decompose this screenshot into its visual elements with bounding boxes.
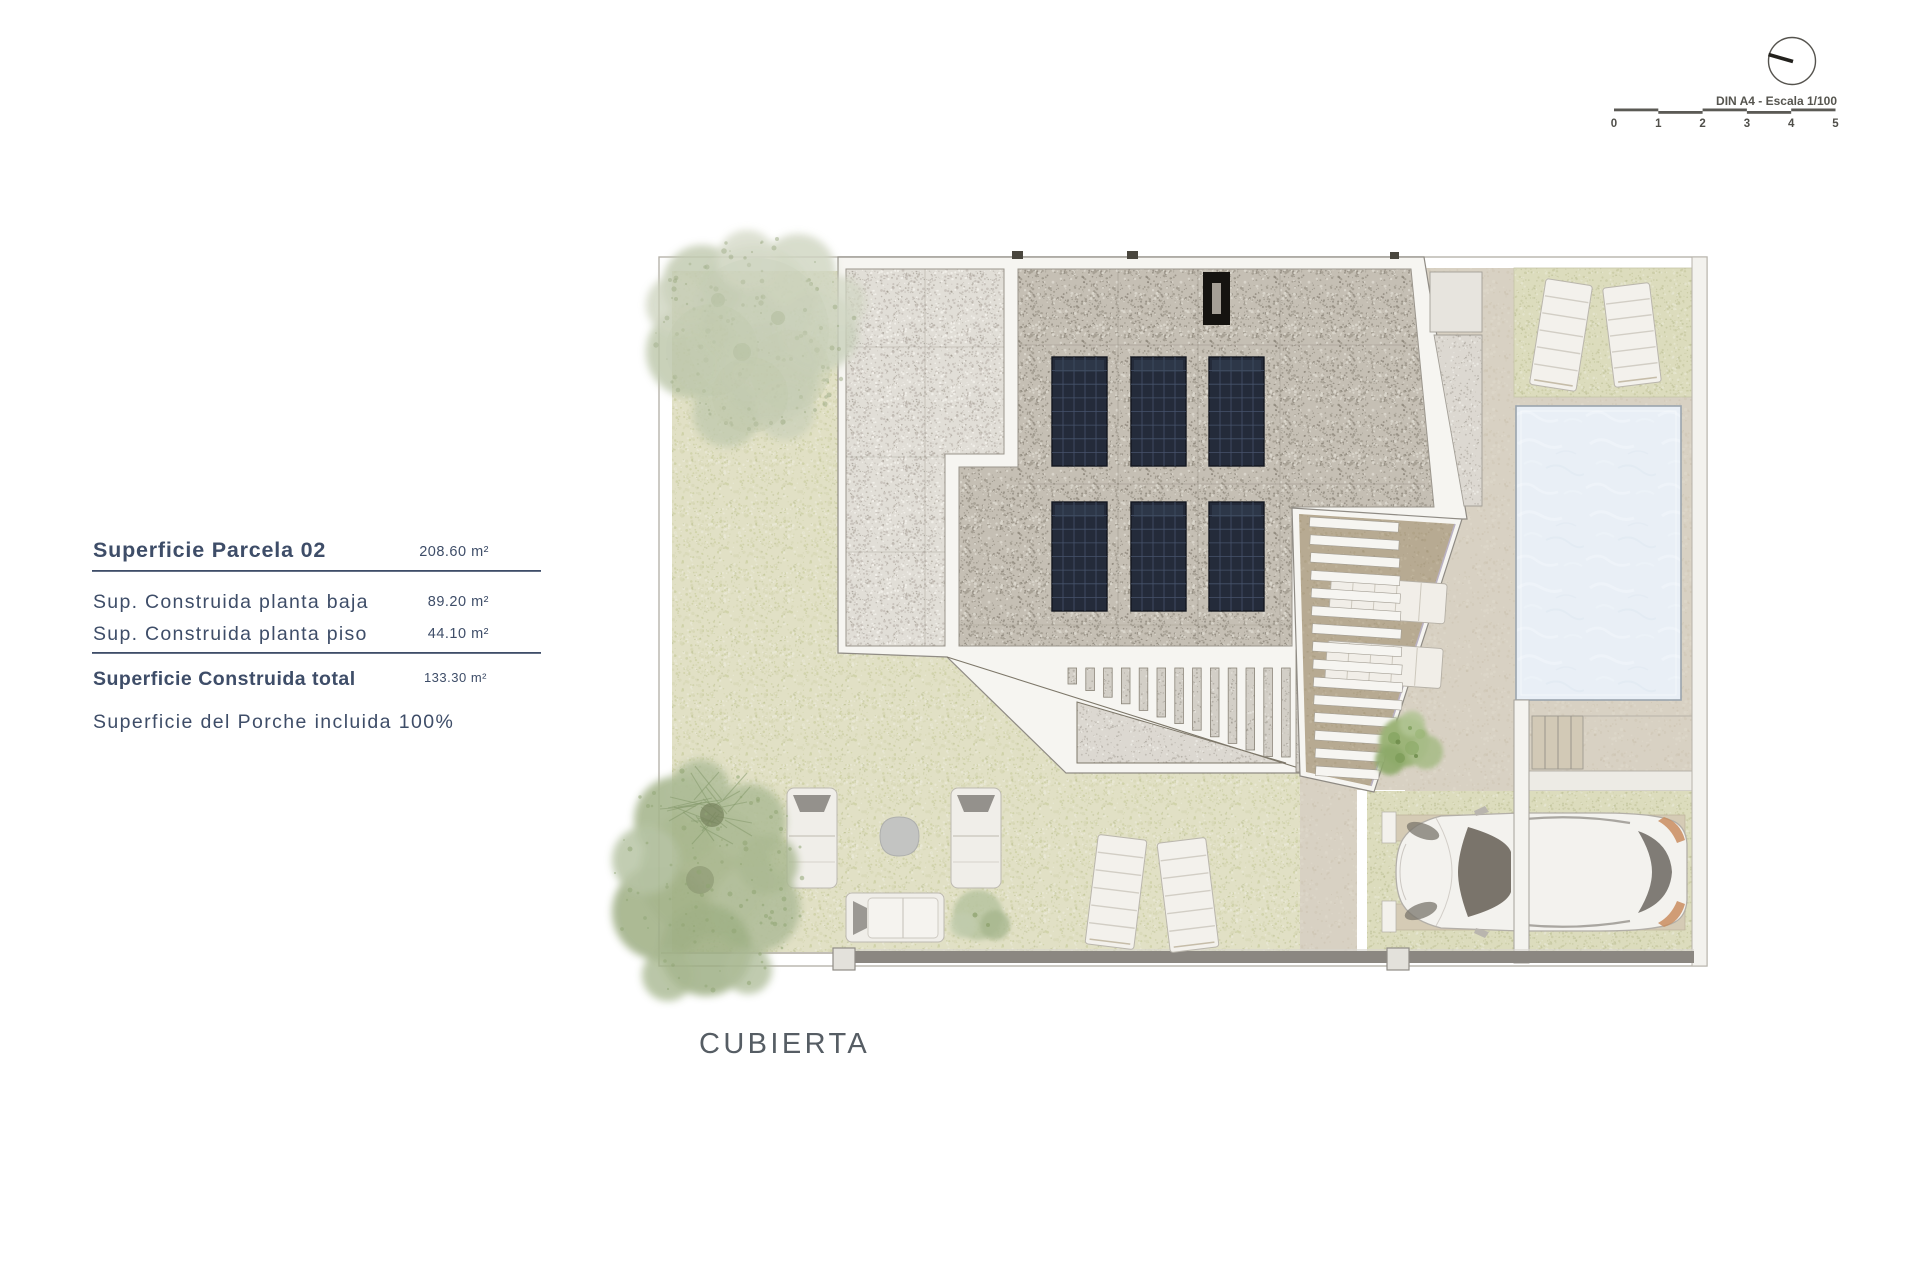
svg-text:CUBIERTA: CUBIERTA: [699, 1028, 870, 1060]
svg-text:Sup. Construida planta piso: Sup. Construida planta piso: [93, 623, 368, 645]
svg-text:208.60 m²: 208.60 m²: [419, 544, 489, 560]
svg-text:3: 3: [1744, 118, 1750, 130]
svg-text:44.10 m²: 44.10 m²: [428, 626, 489, 642]
svg-text:133.30 m²: 133.30 m²: [424, 670, 487, 685]
svg-text:1: 1: [1655, 118, 1662, 130]
svg-text:DIN A4 - Escala 1/100: DIN A4 - Escala 1/100: [1716, 94, 1837, 108]
svg-text:2: 2: [1699, 118, 1705, 130]
svg-text:Sup. Construida planta baja: Sup. Construida planta baja: [93, 591, 369, 613]
svg-text:Superficie Construida total: Superficie Construida total: [93, 668, 356, 690]
svg-text:5: 5: [1832, 118, 1839, 130]
svg-text:0: 0: [1611, 118, 1617, 130]
svg-text:Superficie Parcela 02: Superficie Parcela 02: [93, 538, 326, 562]
svg-text:89.20 m²: 89.20 m²: [428, 594, 489, 610]
svg-text:4: 4: [1788, 118, 1795, 130]
svg-text:Superficie del Porche incluida: Superficie del Porche incluida 100%: [93, 711, 454, 733]
